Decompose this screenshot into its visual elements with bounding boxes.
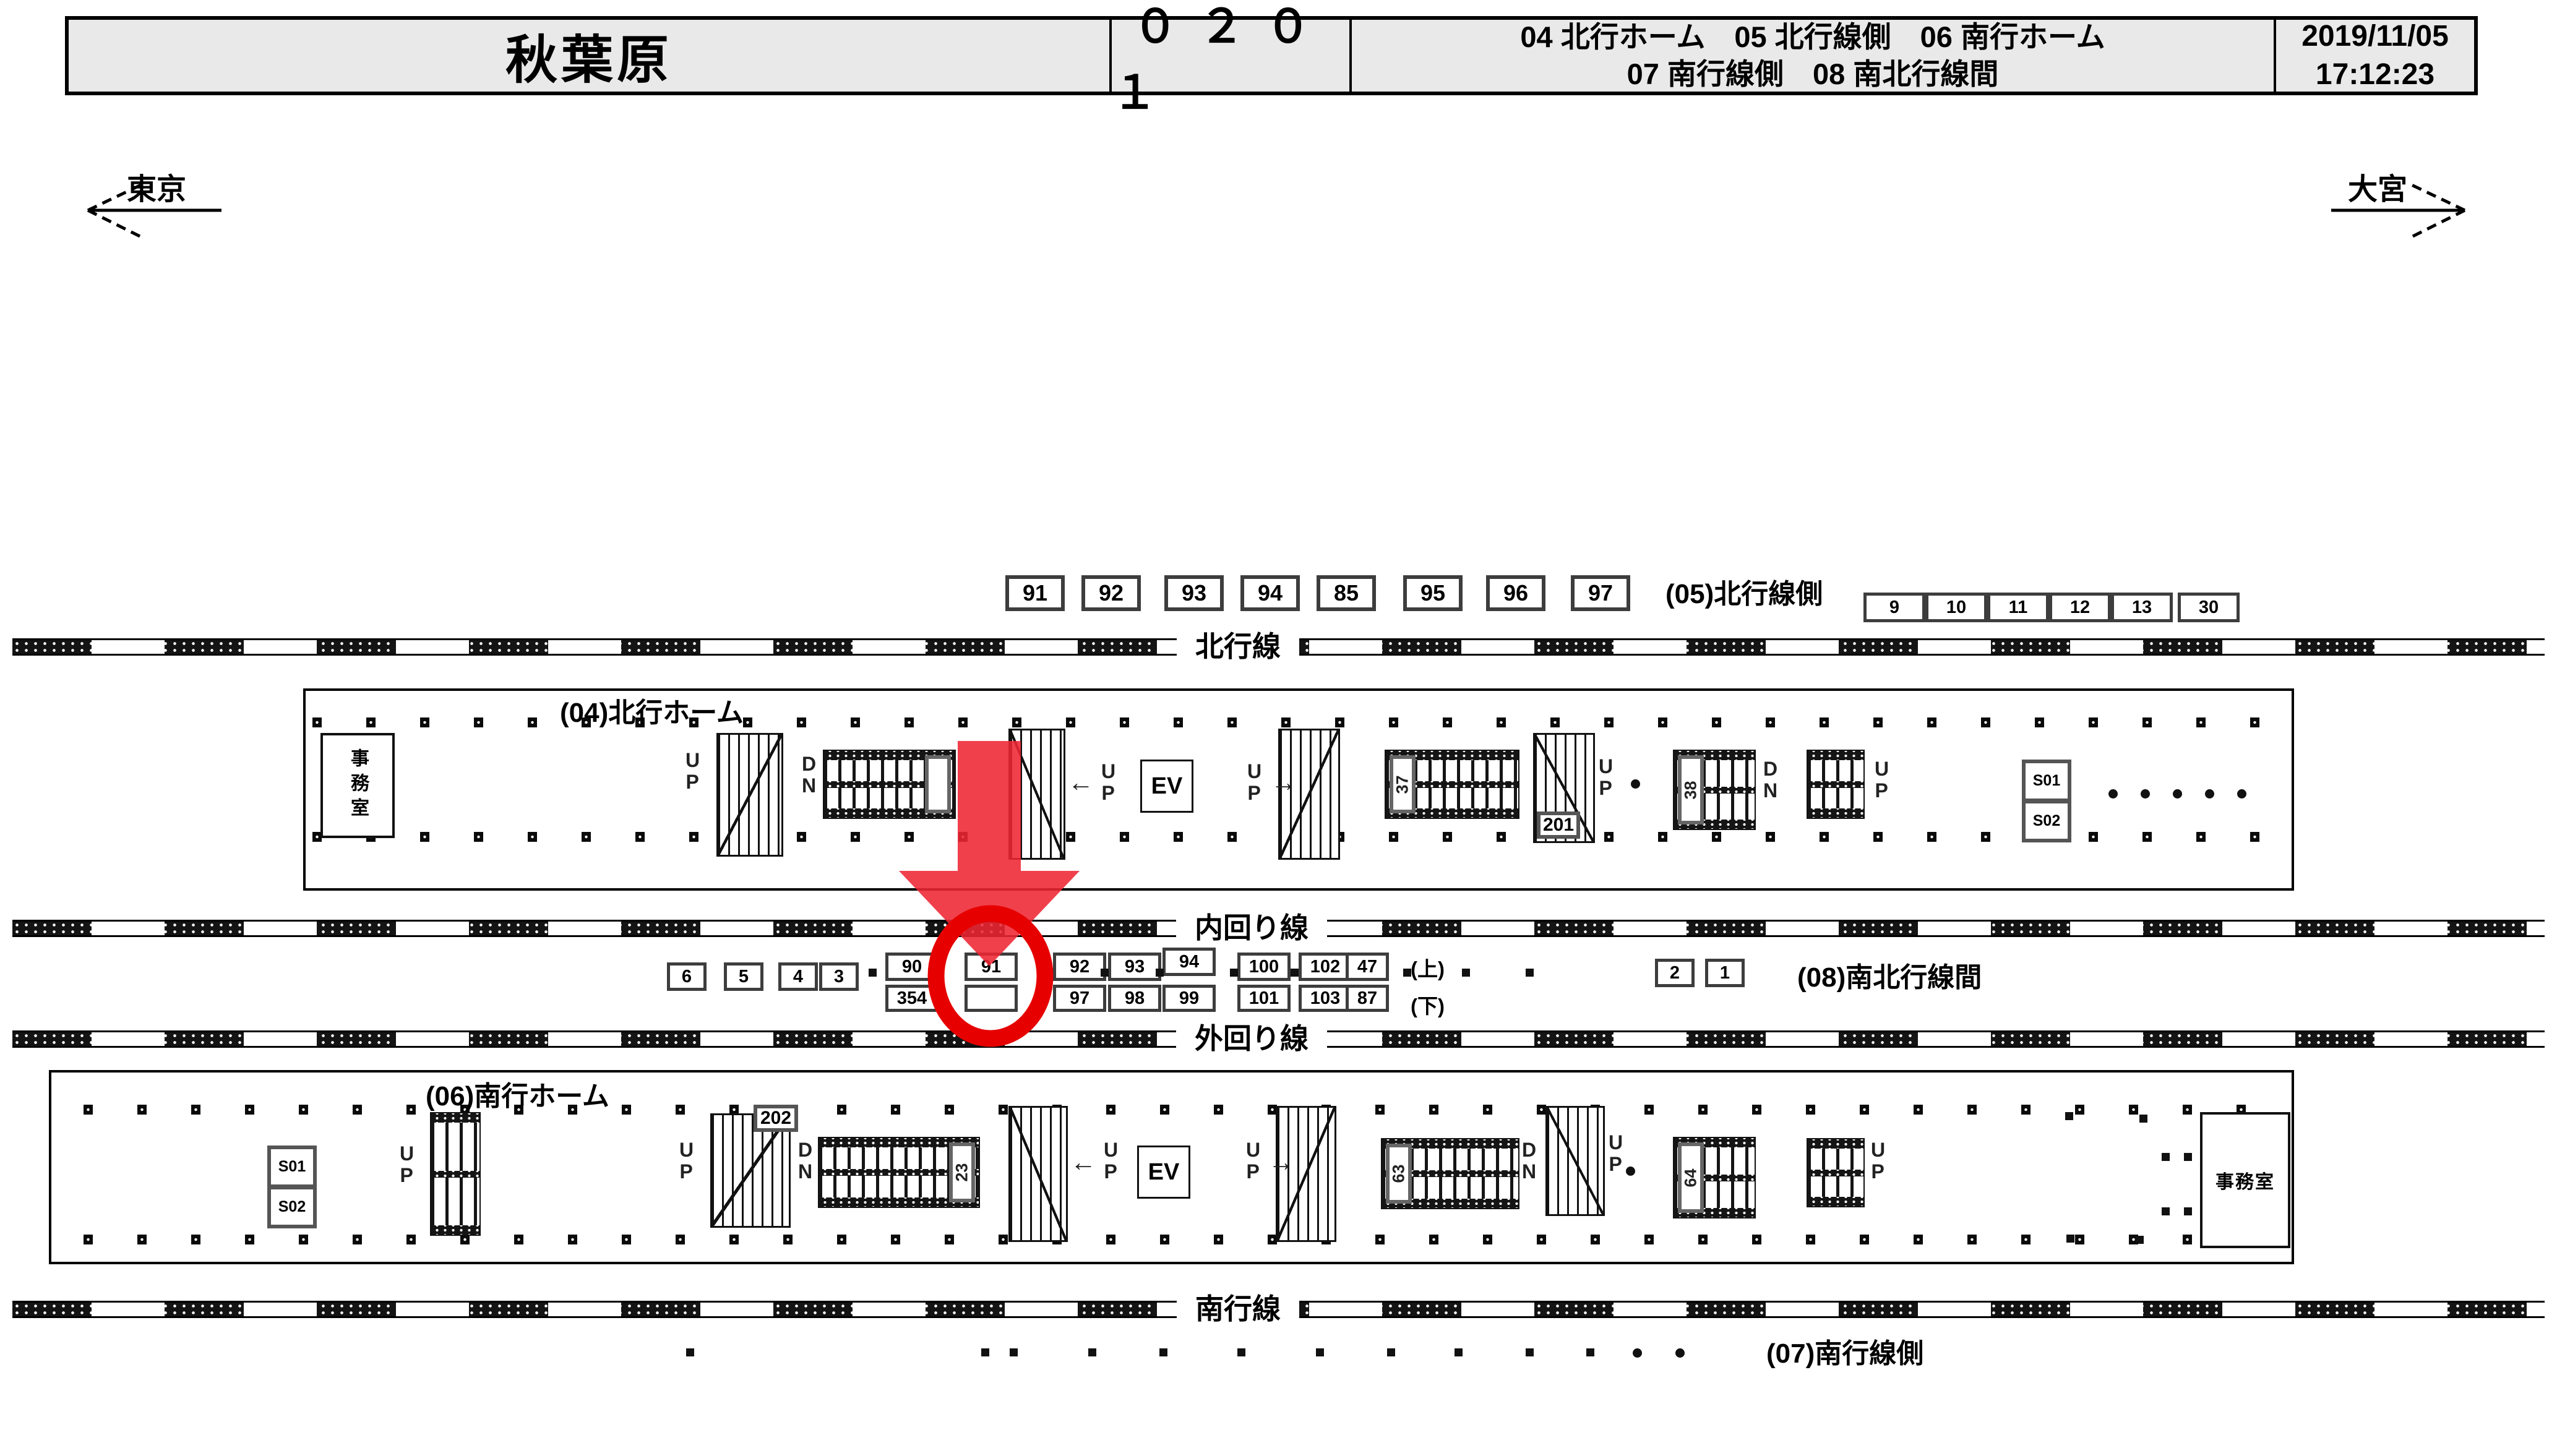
escalator xyxy=(1807,750,1865,819)
direction-up-label: UP xyxy=(1101,761,1115,803)
escalator xyxy=(823,750,956,819)
marker-square xyxy=(1291,969,1299,977)
platform-pillar xyxy=(2021,1105,2031,1115)
platform-pillar xyxy=(851,717,860,727)
platform-pillar xyxy=(460,1235,470,1244)
marker-square xyxy=(1462,969,1470,977)
camera-box[interactable]: 6 xyxy=(667,962,707,991)
platform-pillar xyxy=(84,1235,93,1244)
track-northbound: 北行線 xyxy=(12,638,2545,656)
area-label-06: (06)南行ホーム xyxy=(426,1074,609,1113)
platform-pillar xyxy=(797,832,806,842)
direction-up-label: UP xyxy=(1871,1139,1884,1182)
escalator: 37 xyxy=(1385,750,1519,819)
marker-dot xyxy=(2173,789,2182,799)
platform-pillar xyxy=(1712,717,1721,727)
camera-box[interactable]: 92 xyxy=(1053,953,1106,981)
platform-pillar xyxy=(1806,1235,1815,1244)
camera-box[interactable]: 97 xyxy=(1053,985,1106,1012)
marker-square xyxy=(1316,1348,1324,1356)
marker-dot xyxy=(2108,789,2118,799)
updown-label-upper: (上) xyxy=(1411,953,1445,982)
camera-box[interactable]: 102 xyxy=(1299,953,1352,981)
platform-pillar xyxy=(1443,832,1452,842)
camera-group-legend: 04 北行ホーム 05 北行線側 06 南行ホーム 07 南行線側 08 南北行… xyxy=(1349,20,2274,92)
platform-pillar xyxy=(1604,717,1614,727)
stairs xyxy=(1545,1106,1605,1216)
platform-pillar xyxy=(2075,1105,2084,1115)
platform-pillar xyxy=(999,1105,1008,1115)
track-inner-loop: 内回り線 xyxy=(12,920,2545,937)
camera-box[interactable]: 5 xyxy=(724,962,763,991)
track-inner-loop-label: 内回り線 xyxy=(1176,911,1327,945)
platform-pillar xyxy=(137,1235,147,1244)
arrow-left-icon: ← xyxy=(1070,1149,1096,1175)
escalator: 64 xyxy=(1673,1137,1756,1218)
track-northbound-label: 北行線 xyxy=(1177,630,1299,664)
camera-box[interactable]: 12 xyxy=(2049,593,2111,622)
platform-pillar xyxy=(1429,1235,1438,1244)
marker-square xyxy=(1387,1348,1395,1356)
platform-pillar xyxy=(137,1105,147,1115)
updown-label-lower: (下) xyxy=(1411,990,1445,1019)
track-southbound-label: 南行線 xyxy=(1177,1292,1299,1326)
platform-pillar xyxy=(514,1235,523,1244)
platform-pillar xyxy=(1914,1235,1923,1244)
camera-box[interactable]: 93 xyxy=(1164,575,1224,611)
platform-pillar xyxy=(2035,717,2044,727)
platform-pillar xyxy=(2021,1235,2031,1244)
camera-box[interactable]: 94 xyxy=(1162,948,1216,976)
platform-pillar xyxy=(2129,1105,2138,1115)
platform-pillar xyxy=(1967,1235,1977,1244)
camera-box[interactable]: 11 xyxy=(1987,593,2049,622)
camera-box[interactable]: 1 xyxy=(1705,959,1745,987)
marker-square xyxy=(2066,1235,2074,1243)
platform-pillar xyxy=(1012,717,1021,727)
platform-pillar xyxy=(1644,1235,1654,1244)
platform-pillar xyxy=(420,832,429,842)
marker-dot xyxy=(2205,789,2214,799)
platform-pillar xyxy=(1658,717,1667,727)
platform-pillar xyxy=(1429,1105,1438,1115)
platform-pillar xyxy=(958,717,968,727)
platform-pillar xyxy=(1591,1235,1600,1244)
marker-square xyxy=(981,1348,989,1356)
arrow-right-icon: → xyxy=(1268,1149,1294,1175)
direction-up-label: UP xyxy=(1246,1139,1260,1182)
direction-up-label: UP xyxy=(1609,1132,1622,1175)
platform-pillar xyxy=(366,717,376,727)
camera-box[interactable]: 94 xyxy=(1240,575,1300,611)
platform-pillar xyxy=(1483,1235,1492,1244)
platform-pillar xyxy=(1443,717,1452,727)
direction-down-label: DN xyxy=(798,1139,812,1182)
marker-square xyxy=(1403,969,1411,977)
escalator-number-box: 38 xyxy=(1678,755,1704,824)
platform-pillar xyxy=(905,717,914,727)
camera-box[interactable]: 85 xyxy=(1317,575,1376,611)
platform-pillar xyxy=(2250,717,2259,727)
platform-pillar xyxy=(851,832,860,842)
station-code: ０２０１ xyxy=(1109,20,1349,92)
marker-square xyxy=(2184,1153,2192,1161)
platform-pillar xyxy=(474,717,483,727)
station-diagram: 秋葉原 ０２０１ 04 北行ホーム 05 北行線側 06 南行ホーム 07 南行… xyxy=(0,0,2557,1456)
escalator-number-box: 63 xyxy=(1386,1144,1412,1204)
platform-pillar xyxy=(2196,832,2206,842)
platform-pillar xyxy=(1820,717,1829,727)
platform-pillar xyxy=(1106,1235,1115,1244)
platform-pillar xyxy=(1698,1105,1708,1115)
platform-pillar xyxy=(1174,832,1183,842)
time-text: 17:12:23 xyxy=(2316,56,2435,94)
camera-box[interactable]: 99 xyxy=(1162,985,1216,1012)
stairs xyxy=(1008,729,1065,860)
camera-box[interactable]: 47 xyxy=(1346,953,1389,981)
marker-square xyxy=(1526,969,1534,977)
camera-box[interactable] xyxy=(965,985,1018,1012)
platform-pillar xyxy=(1281,717,1291,727)
platform-pillar xyxy=(1120,832,1129,842)
platform-pillar xyxy=(1752,1235,1761,1244)
marker-square xyxy=(2065,1112,2073,1120)
camera-box[interactable]: 90 xyxy=(885,953,939,981)
platform-pillar xyxy=(1483,1105,1492,1115)
platform-pillar xyxy=(676,1235,685,1244)
marker-square xyxy=(869,969,877,977)
platform-pillar xyxy=(1927,717,1936,727)
marker-dot xyxy=(1633,1348,1642,1358)
direction-down-label: DN xyxy=(1522,1139,1536,1182)
platform-pillar xyxy=(1927,832,1936,842)
platform-pillar xyxy=(245,1235,254,1244)
platform-pillar xyxy=(1698,1235,1708,1244)
platform-pillar xyxy=(891,1235,900,1244)
marker-dot xyxy=(1631,779,1640,789)
marker-square xyxy=(1586,1348,1594,1356)
elevator-box: EV xyxy=(1140,760,1193,813)
platform-pillar xyxy=(1214,1235,1223,1244)
track-outer-loop-label: 外回り線 xyxy=(1176,1022,1327,1056)
camera-box[interactable]: 95 xyxy=(1403,575,1463,611)
platform-pillar xyxy=(420,717,429,727)
direction-right-label: 大宮 xyxy=(2348,165,2407,208)
platform-pillar xyxy=(353,1105,362,1115)
marker-square xyxy=(1101,969,1109,977)
marker-square xyxy=(2162,1207,2170,1215)
platform-pillar xyxy=(622,1235,631,1244)
direction-up-label: UP xyxy=(1247,761,1261,803)
platform-pillar xyxy=(743,717,752,727)
marker-square xyxy=(1156,969,1164,977)
platform-pillar xyxy=(1712,832,1721,842)
track-southbound: 南行線 xyxy=(12,1301,2545,1318)
platform-pillar xyxy=(958,832,968,842)
camera-box[interactable]: 3 xyxy=(819,962,859,991)
signal-unit-s01: S01 xyxy=(2026,763,2068,799)
platform-pillar xyxy=(1873,832,1883,842)
header-bar: 秋葉原 ０２０１ 04 北行ホーム 05 北行線側 06 南行ホーム 07 南行… xyxy=(65,16,2478,95)
escalator-number-box: 37 xyxy=(1390,755,1416,813)
platform-pillar xyxy=(2142,717,2152,727)
platform-pillar xyxy=(945,1235,954,1244)
camera-box[interactable]: 100 xyxy=(1237,953,1291,981)
platform-pillar xyxy=(837,1105,846,1115)
platform-pillar xyxy=(1120,717,1129,727)
marker-square xyxy=(1455,1348,1463,1356)
camera-box[interactable]: 2 xyxy=(1655,959,1695,987)
signal-unit-s02: S02 xyxy=(2026,803,2068,839)
platform-pillar xyxy=(1227,832,1237,842)
platform-pillar xyxy=(797,717,806,727)
platform-pillar xyxy=(299,1235,308,1244)
area-label-05: (05)北行線側 xyxy=(1665,572,1823,611)
camera-box[interactable]: 96 xyxy=(1486,575,1545,611)
arrow-right-icon: → xyxy=(1271,769,1297,795)
area-label-07: (07)南行線側 xyxy=(1766,1331,1923,1371)
platform-pillar xyxy=(1214,1105,1223,1115)
camera-box[interactable]: 91 xyxy=(965,953,1018,981)
platform-pillar xyxy=(245,1105,254,1115)
stair-number-plate: 201 xyxy=(1537,812,1580,839)
platform-pillar xyxy=(1550,717,1560,727)
platform-pillar xyxy=(1375,1105,1385,1115)
office-room-label: 事務室 xyxy=(2215,1167,2275,1194)
camera-box[interactable]: 354 xyxy=(885,985,939,1012)
platform-pillar xyxy=(2196,717,2206,727)
stairs xyxy=(1008,1106,1068,1242)
platform-pillar xyxy=(1806,1105,1815,1115)
platform-pillar xyxy=(1174,717,1183,727)
escalator-number-box: 23 xyxy=(949,1142,975,1202)
camera-box[interactable]: 9 xyxy=(1863,593,1925,622)
platform-pillar xyxy=(837,1235,846,1244)
escalator-number-box xyxy=(925,755,951,813)
platform-pillar xyxy=(676,1105,685,1115)
area-label-08: (08)南北行線間 xyxy=(1797,955,1982,995)
platform-pillar xyxy=(1389,717,1398,727)
platform-pillar xyxy=(999,1235,1008,1244)
camera-box[interactable]: 10 xyxy=(1925,593,1987,622)
direction-up-label: UP xyxy=(685,750,699,792)
platform-pillar xyxy=(528,832,537,842)
platform-pillar xyxy=(1497,832,1506,842)
platform-pillar xyxy=(2089,717,2098,727)
platform-pillar xyxy=(1981,832,1990,842)
platform-pillar xyxy=(312,717,322,727)
camera-box[interactable]: 91 xyxy=(1005,575,1065,611)
stair-number-plate: 202 xyxy=(754,1105,798,1132)
platform-pillar xyxy=(1389,832,1398,842)
platform-pillar xyxy=(2089,832,2098,842)
platform-pillar xyxy=(2075,1235,2084,1244)
platform-pillar xyxy=(1766,717,1775,727)
signal-unit: S01S02 xyxy=(2022,760,2071,842)
platform-pillar xyxy=(84,1105,93,1115)
platform-pillar xyxy=(1066,717,1075,727)
platform-pillar xyxy=(1914,1105,1923,1115)
camera-box[interactable]: 13 xyxy=(2111,593,2173,622)
marker-square xyxy=(1159,1348,1167,1356)
platform-pillar xyxy=(635,832,645,842)
platform-pillar xyxy=(1860,1105,1869,1115)
timestamp: 2019/11/05 17:12:23 xyxy=(2274,20,2474,92)
marker-square xyxy=(686,1348,694,1356)
platform-pillar xyxy=(1335,717,1344,727)
platform-pillar xyxy=(406,1235,416,1244)
direction-up-label: UP xyxy=(1104,1139,1117,1182)
track-outer-loop: 外回り線 xyxy=(12,1030,2545,1048)
platform-pillar xyxy=(729,1235,739,1244)
marker-dot xyxy=(2237,789,2246,799)
platform-pillar xyxy=(1375,1235,1385,1244)
platform-pillar xyxy=(783,1235,793,1244)
marker-square xyxy=(1088,1348,1096,1356)
platform-pillar xyxy=(1160,1105,1169,1115)
marker-dot xyxy=(1626,1167,1635,1176)
marker-square xyxy=(2184,1207,2192,1215)
platform-pillar xyxy=(2250,832,2259,842)
camera-box[interactable]: 4 xyxy=(778,962,818,991)
platform-pillar xyxy=(299,1105,308,1115)
platform-pillar xyxy=(191,1105,200,1115)
arrow-left-icon: ← xyxy=(1068,769,1094,795)
platform-pillar xyxy=(1106,1105,1115,1115)
date-text: 2019/11/05 xyxy=(2301,17,2449,56)
marker-square xyxy=(1237,1348,1245,1356)
platform-pillar xyxy=(905,832,914,842)
marker-dot xyxy=(2141,789,2150,799)
direction-up-label: UP xyxy=(1875,758,1888,801)
platform-pillar xyxy=(1160,1235,1169,1244)
direction-up-label: UP xyxy=(1599,756,1612,799)
marker-square xyxy=(2139,1115,2147,1123)
platform-pillar xyxy=(568,1235,577,1244)
platform-pillar xyxy=(1537,1235,1546,1244)
platform-pillar xyxy=(353,1235,362,1244)
signal-unit: S01S02 xyxy=(267,1146,317,1228)
escalator xyxy=(430,1112,481,1236)
camera-group-legend-line1: 04 北行ホーム 05 北行線側 06 南行ホーム xyxy=(1520,19,2105,56)
camera-box[interactable]: 103 xyxy=(1299,985,1352,1012)
direction-up-label: UP xyxy=(679,1139,693,1182)
marker-square xyxy=(1526,1348,1534,1356)
direction-down-label: DN xyxy=(1763,758,1777,801)
platform-pillar xyxy=(1644,1105,1654,1115)
direction-down-label: DN xyxy=(802,753,815,796)
escalator: 38 xyxy=(1673,750,1756,830)
escalator: 23 xyxy=(818,1137,980,1208)
platform-pillar xyxy=(2183,1105,2192,1115)
platform-pillar xyxy=(1497,717,1506,727)
platform-pillar xyxy=(1873,717,1883,727)
station-name: 秋葉原 xyxy=(69,20,1109,92)
platform-pillar xyxy=(1537,1105,1546,1115)
camera-group-legend-line2: 07 南行線側 08 南北行線間 xyxy=(1627,56,1999,93)
platform-pillar xyxy=(1967,1105,1977,1115)
elevator-box: EV xyxy=(1137,1146,1190,1199)
platform-pillar xyxy=(474,832,483,842)
platform-pillar xyxy=(2183,1235,2192,1244)
stairs xyxy=(716,733,783,857)
marker-square xyxy=(2136,1236,2144,1244)
marker-square xyxy=(1010,1348,1018,1356)
platform-pillar xyxy=(1066,832,1075,842)
signal-unit-s02: S02 xyxy=(271,1189,313,1225)
office-room: 事務室 xyxy=(2200,1112,2290,1248)
office-room-label: 事務室 xyxy=(344,748,371,823)
platform-pillar xyxy=(406,1105,416,1115)
marker-square xyxy=(2162,1153,2170,1161)
marker-square xyxy=(1230,969,1238,977)
area-label-04: (04)北行ホーム xyxy=(560,690,744,730)
camera-box[interactable]: 97 xyxy=(1571,575,1630,611)
platform-pillar xyxy=(1227,717,1237,727)
platform-pillar xyxy=(1766,832,1775,842)
platform-pillar xyxy=(1658,832,1667,842)
platform-pillar xyxy=(1820,832,1829,842)
escalator: 63 xyxy=(1381,1138,1519,1209)
direction-left-label: 東京 xyxy=(127,165,186,208)
platform-pillar xyxy=(622,1105,631,1115)
platform-pillar xyxy=(1860,1235,1869,1244)
office-room: 事務室 xyxy=(320,733,395,838)
camera-box[interactable]: 101 xyxy=(1237,985,1291,1012)
escalator xyxy=(1807,1138,1865,1207)
camera-box[interactable]: 98 xyxy=(1108,985,1161,1012)
platform-pillar xyxy=(1981,717,1990,727)
platform-pillar xyxy=(945,1105,954,1115)
escalator-number-box: 64 xyxy=(1678,1142,1704,1213)
camera-box[interactable]: 30 xyxy=(2178,593,2240,622)
direction-up-label: UP xyxy=(400,1143,413,1186)
platform-pillar xyxy=(191,1235,200,1244)
marker-dot xyxy=(1675,1348,1685,1358)
platform-pillar xyxy=(891,1105,900,1115)
marker-square xyxy=(1044,969,1052,977)
platform-pillar xyxy=(2142,832,2152,842)
platform-pillar xyxy=(1752,1105,1761,1115)
platform-pillar xyxy=(528,717,537,727)
platform-pillar xyxy=(582,832,591,842)
platform-pillar xyxy=(1604,832,1614,842)
camera-box[interactable]: 93 xyxy=(1108,953,1161,981)
signal-unit-s01: S01 xyxy=(271,1149,313,1184)
platform-pillar xyxy=(689,832,698,842)
camera-box[interactable]: 87 xyxy=(1346,985,1389,1012)
camera-box[interactable]: 92 xyxy=(1081,575,1141,611)
